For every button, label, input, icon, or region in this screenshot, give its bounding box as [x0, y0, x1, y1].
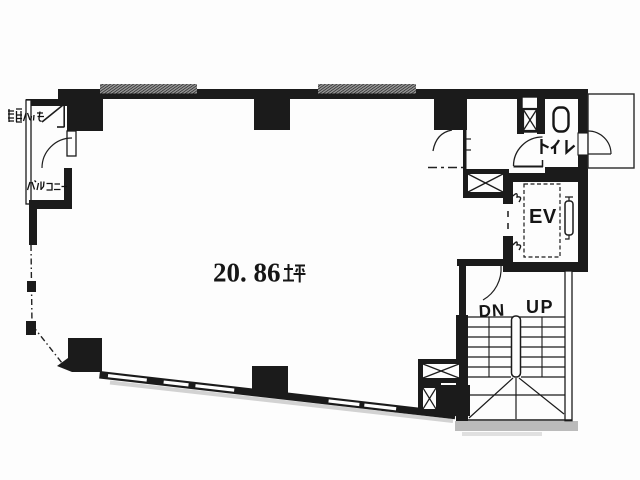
svg-text:EV: EV [529, 206, 557, 228]
svg-text:UP: UP [526, 297, 554, 317]
svg-text:20. 86: 20. 86 [213, 258, 281, 288]
svg-text:DN: DN [478, 301, 506, 321]
